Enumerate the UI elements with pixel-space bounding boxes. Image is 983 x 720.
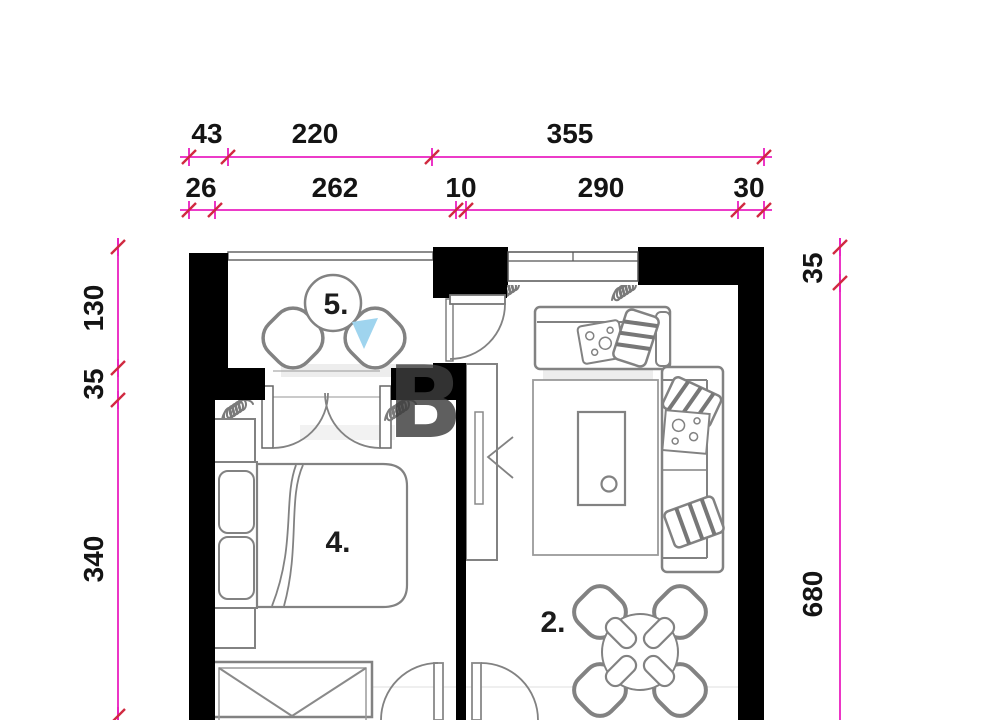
nightstand-top — [212, 419, 255, 463]
dim-label: 355 — [547, 118, 594, 149]
dim-label: 220 — [292, 118, 339, 149]
pillow — [219, 471, 254, 533]
coffee-table — [578, 412, 625, 505]
dim-label: 290 — [578, 172, 625, 203]
dim-label: 10 — [445, 172, 476, 203]
nightstand-bottom — [212, 606, 255, 648]
room-living: 2. — [466, 279, 725, 720]
living-window — [508, 247, 638, 285]
wall-balcony-bedroom-left — [189, 368, 265, 400]
blanket-dotted — [662, 410, 709, 454]
pillow — [219, 537, 254, 599]
living-door — [472, 663, 538, 720]
dim-label: 43 — [191, 118, 222, 149]
balcony-room-number: 5. — [323, 288, 348, 321]
door-leaf — [450, 295, 505, 304]
door-leaf — [434, 663, 443, 720]
floor-plan-drawing: 5. 4. — [0, 0, 983, 720]
dim-label: 35 — [797, 252, 828, 283]
wall-left-lower — [189, 368, 215, 720]
dining-set — [567, 579, 712, 720]
sofa-top — [535, 307, 670, 369]
sofa-right — [661, 367, 725, 572]
dim-label: 30 — [733, 172, 764, 203]
dim-column-right: 35 680 — [797, 238, 847, 720]
dim-label: 680 — [797, 571, 828, 618]
coffee-table-detail — [602, 477, 617, 492]
dim-label: 262 — [312, 172, 359, 203]
dim-row-top-outer: 43 220 355 — [180, 118, 772, 166]
dim-label: 26 — [185, 172, 216, 203]
door-swing-arc — [481, 663, 538, 720]
door-swing-arc — [381, 663, 438, 720]
bedroom-room-number: 4. — [325, 526, 350, 559]
balcony-railing — [228, 252, 433, 260]
dim-row-top-inner: 26 262 10 290 30 — [180, 172, 772, 219]
dim-label: 340 — [78, 536, 109, 583]
bedroom-door — [381, 663, 443, 720]
wall-right — [738, 247, 764, 720]
dim-column-left: 130 35 340 0 — [78, 238, 125, 720]
living-room-number: 2. — [540, 606, 565, 639]
watermark-letter: B — [387, 344, 463, 461]
wall-top-left-segment — [433, 247, 510, 285]
dim-label: 35 — [78, 368, 109, 399]
wall-left-upper — [189, 253, 228, 368]
living-wardrobe — [466, 364, 513, 560]
door-leaf — [472, 663, 481, 720]
bedroom-wardrobe — [213, 662, 372, 720]
dim-label: 130 — [78, 285, 109, 332]
floor-plan-page: 5. 4. — [0, 0, 983, 720]
curtain — [222, 399, 253, 420]
